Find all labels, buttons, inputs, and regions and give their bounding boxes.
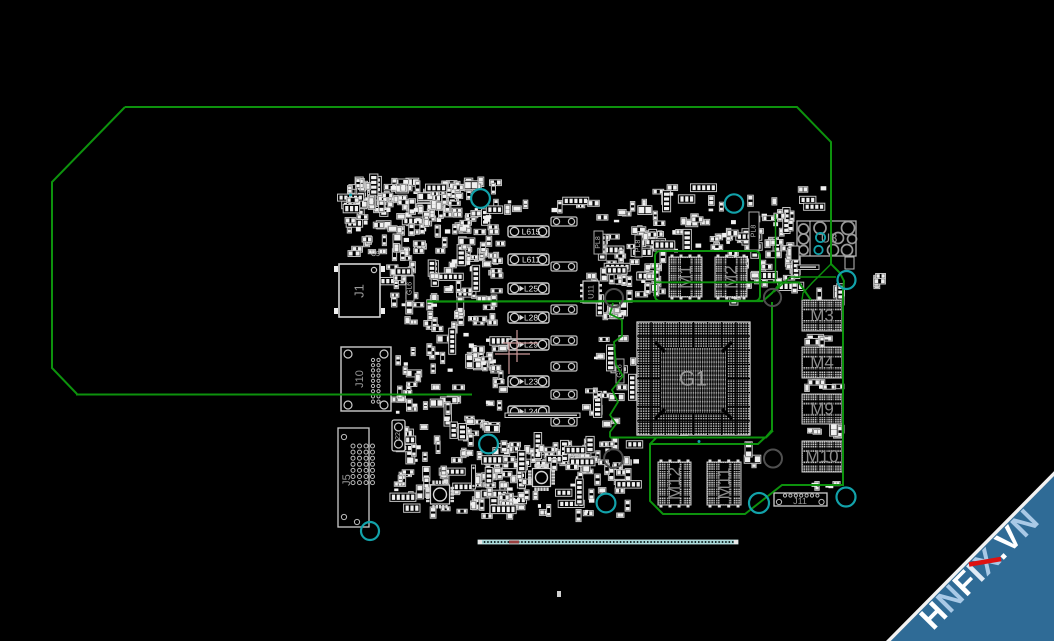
svg-text:PL8: PL8 [595, 236, 602, 249]
svg-text:L23: L23 [524, 377, 538, 387]
svg-text:J5: J5 [341, 474, 353, 486]
svg-text:M10: M10 [805, 447, 838, 466]
svg-text:L25: L25 [524, 284, 538, 294]
svg-text:L28: L28 [524, 313, 538, 323]
svg-text:M3: M3 [810, 306, 834, 325]
svg-text:U11: U11 [587, 284, 596, 299]
svg-text:G1: G1 [679, 368, 707, 391]
svg-text:M2: M2 [722, 265, 741, 289]
svg-text:PL8: PL8 [751, 225, 758, 238]
svg-text:M9: M9 [810, 400, 834, 419]
svg-text:GL6: GL6 [407, 282, 414, 295]
svg-text:L611: L611 [522, 255, 540, 265]
svg-text:L615: L615 [522, 227, 541, 237]
svg-text:22: 22 [395, 432, 402, 440]
svg-text:M4: M4 [810, 353, 834, 372]
svg-text:J11: J11 [793, 496, 807, 506]
svg-text:M11: M11 [715, 468, 734, 500]
svg-text:L29: L29 [524, 340, 538, 350]
svg-text:J1: J1 [352, 284, 367, 298]
svg-text:M1: M1 [676, 265, 695, 289]
svg-text:C5: C5 [371, 251, 380, 258]
svg-text:M12: M12 [665, 467, 684, 500]
svg-text:PL8: PL8 [635, 240, 642, 253]
svg-text:J10: J10 [354, 370, 366, 388]
